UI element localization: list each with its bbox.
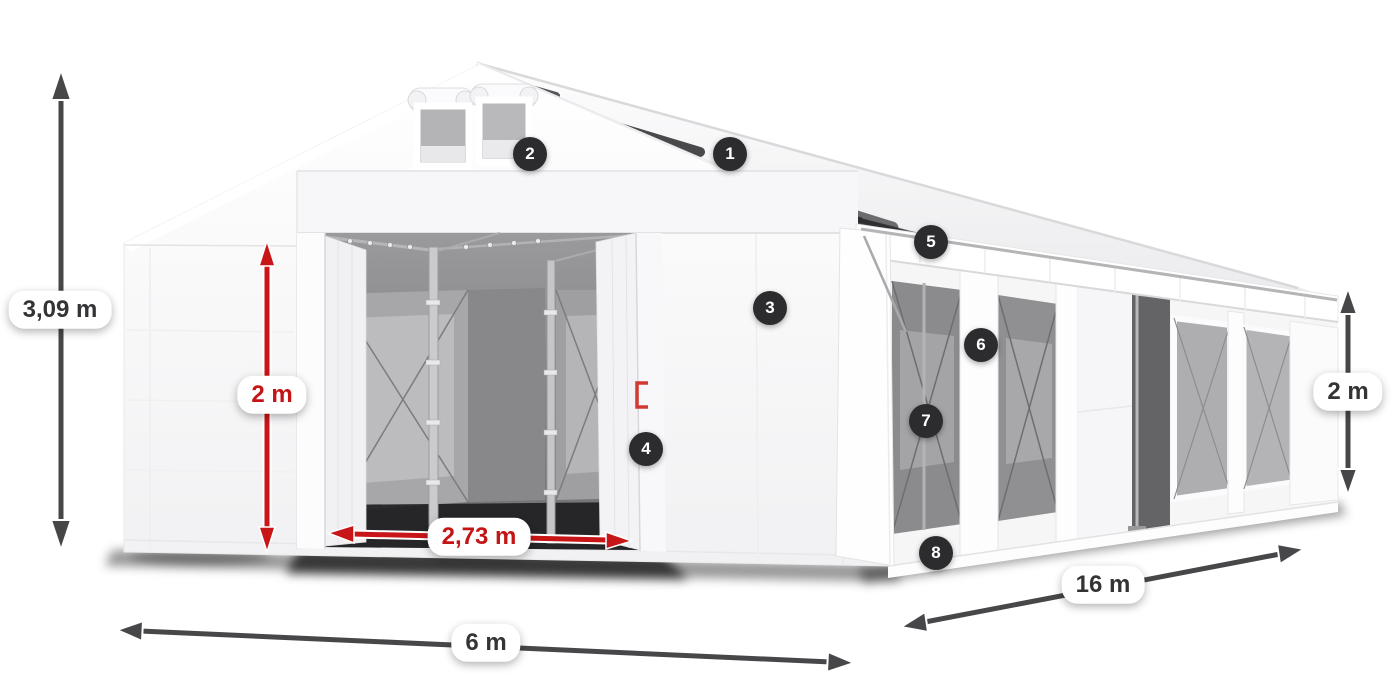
dim-label-side-height: 2 m — [1313, 373, 1382, 411]
tent-dimension-diagram: 3,09 m 2 m 2,73 m 6 m 16 m 2 m 1 2 3 4 5… — [0, 0, 1400, 700]
front-door-opening — [322, 233, 640, 550]
dim-label-front-width: 6 m — [451, 624, 520, 662]
front-header-band — [297, 171, 858, 233]
callout-badge-3[interactable]: 3 — [753, 291, 787, 325]
callout-badge-7[interactable]: 7 — [909, 404, 943, 438]
dim-label-door-height: 2 m — [237, 376, 306, 414]
tent-illustration — [0, 0, 1400, 700]
dim-label-total-height: 3,09 m — [9, 291, 112, 329]
callout-badge-6[interactable]: 6 — [964, 328, 998, 362]
callout-badge-4[interactable]: 4 — [629, 432, 663, 466]
callout-badge-1[interactable]: 1 — [713, 137, 747, 171]
dim-label-side-length: 16 m — [1062, 566, 1145, 604]
callout-badge-8[interactable]: 8 — [919, 536, 953, 570]
callout-badge-5[interactable]: 5 — [914, 225, 948, 259]
callout-badge-2[interactable]: 2 — [513, 137, 547, 171]
dim-label-door-width: 2,73 m — [428, 518, 531, 556]
